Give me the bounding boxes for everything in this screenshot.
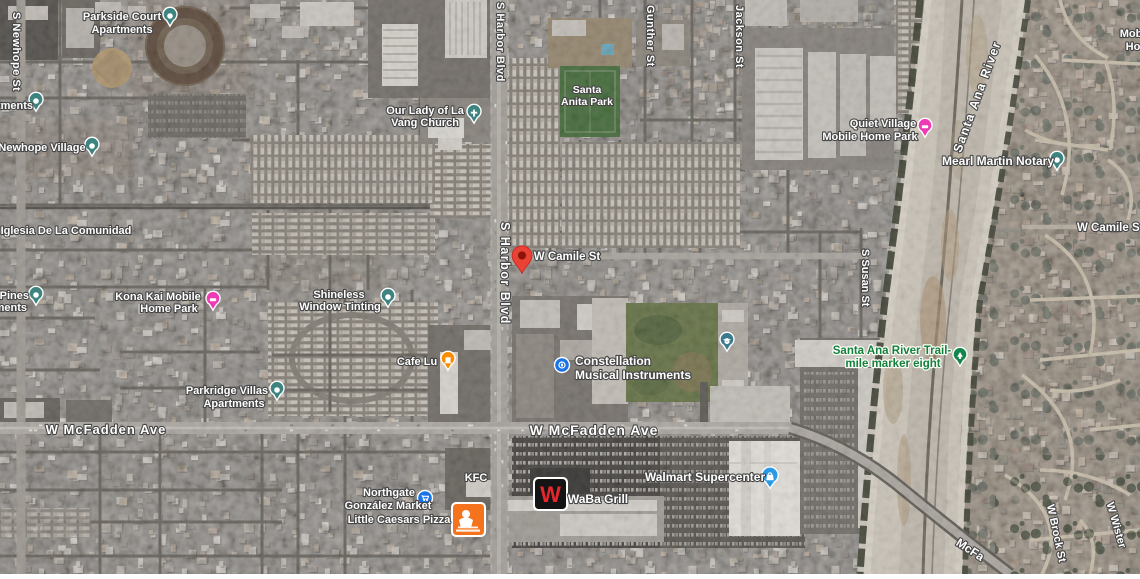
- svg-text:Vang Church: Vang Church: [391, 117, 459, 129]
- svg-text:Parkside Court: Parkside Court: [83, 11, 162, 23]
- svg-text:Ho: Ho: [1126, 41, 1140, 53]
- svg-text:Parkridge Villas: Parkridge Villas: [186, 385, 268, 397]
- svg-text:S Newhope St: S Newhope St: [10, 12, 22, 91]
- svg-text:Mob: Mob: [1120, 28, 1140, 40]
- svg-text:Kona Kai Mobile: Kona Kai Mobile: [115, 291, 201, 303]
- svg-text:Pines: Pines: [0, 290, 29, 302]
- svg-text:mile marker eight: mile marker eight: [845, 358, 940, 370]
- svg-text:Newhope Village: Newhope Village: [0, 142, 86, 154]
- svg-text:Little Caesars Pizza: Little Caesars Pizza: [348, 514, 452, 526]
- svg-text:Musical Instruments: Musical Instruments: [575, 368, 691, 382]
- svg-text:ments: ments: [0, 302, 27, 314]
- svg-text:Santa: Santa: [573, 84, 602, 96]
- svg-text:S Susan St: S Susan St: [859, 249, 871, 307]
- svg-text:Gunther St: Gunther St: [644, 5, 656, 67]
- svg-text:S Harbor Blvd: S Harbor Blvd: [494, 2, 506, 82]
- svg-text:Constellation: Constellation: [575, 354, 651, 368]
- svg-text:González Market: González Market: [345, 500, 432, 512]
- svg-text:Window Tinting: Window Tinting: [299, 301, 381, 313]
- svg-text:Northgate: Northgate: [363, 487, 415, 499]
- svg-text:KFC: KFC: [465, 472, 488, 484]
- svg-text:W McFadden Ave: W McFadden Ave: [530, 422, 659, 438]
- svg-text:Our Lady of La: Our Lady of La: [386, 105, 465, 117]
- svg-text:W McFadden Ave: W McFadden Ave: [46, 422, 167, 437]
- svg-text:Santa Ana River Trail-: Santa Ana River Trail-: [833, 345, 952, 357]
- svg-text:Anita Park: Anita Park: [561, 96, 613, 108]
- svg-text:Home Park: Home Park: [140, 303, 198, 315]
- svg-text:Jackson St: Jackson St: [733, 5, 745, 68]
- svg-text:W Camile St: W Camile St: [534, 251, 601, 263]
- svg-text:WaBa Grill: WaBa Grill: [568, 492, 628, 506]
- svg-text:W: W: [540, 482, 561, 507]
- svg-text:Apartments: Apartments: [91, 24, 152, 36]
- svg-text:Apartments: Apartments: [203, 398, 264, 410]
- svg-text:Shineless: Shineless: [313, 289, 364, 301]
- svg-text:Walmart Supercenter: Walmart Supercenter: [645, 470, 766, 484]
- svg-text:Cafe Lu: Cafe Lu: [397, 356, 437, 368]
- svg-text:Mearl Martin Notary: Mearl Martin Notary: [942, 154, 1054, 168]
- svg-text:Quiet Village: Quiet Village: [850, 118, 916, 130]
- svg-text:S Harbor Blvd: S Harbor Blvd: [498, 222, 512, 325]
- svg-text:rtments: rtments: [0, 100, 33, 112]
- svg-text:Iglesia De La Comunidad: Iglesia De La Comunidad: [1, 225, 132, 237]
- svg-text:Mobile Home Park: Mobile Home Park: [822, 131, 918, 143]
- svg-text:W Camile S: W Camile S: [1077, 222, 1140, 234]
